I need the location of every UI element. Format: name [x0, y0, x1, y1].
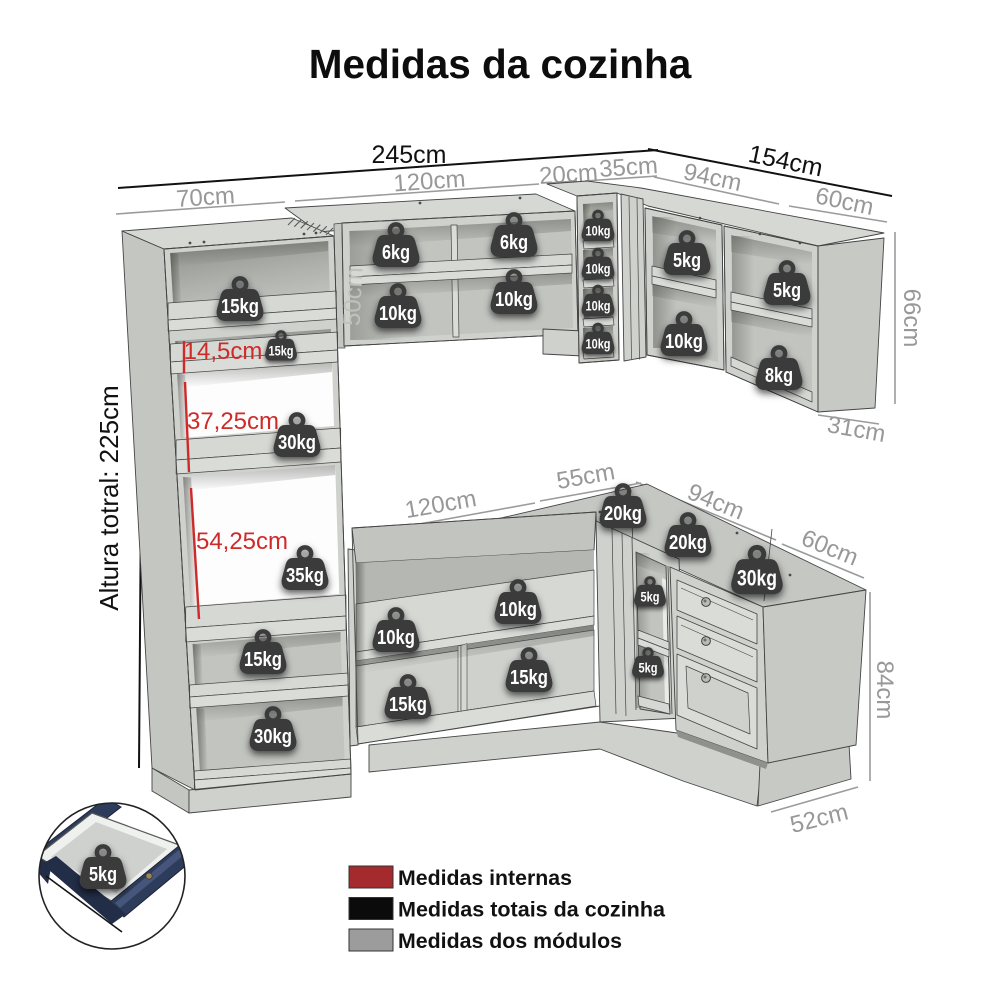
svg-text:70cm: 70cm	[175, 182, 235, 213]
svg-text:Medidas totais da cozinha: Medidas totais da cozinha	[398, 899, 665, 922]
svg-text:5kg: 5kg	[89, 863, 117, 886]
svg-text:10kg: 10kg	[665, 330, 703, 353]
svg-text:6kg: 6kg	[382, 241, 410, 264]
svg-text:15kg: 15kg	[510, 666, 548, 689]
svg-text:30kg: 30kg	[737, 566, 777, 591]
svg-text:20kg: 20kg	[669, 531, 707, 554]
svg-text:15kg: 15kg	[269, 343, 294, 358]
svg-text:Medidas dos módulos: Medidas dos módulos	[398, 930, 622, 953]
svg-text:15kg: 15kg	[221, 295, 259, 318]
svg-text:30kg: 30kg	[278, 431, 316, 454]
svg-text:5kg: 5kg	[641, 589, 660, 604]
svg-text:Medidas internas: Medidas internas	[398, 867, 572, 890]
svg-text:10kg: 10kg	[377, 626, 415, 649]
svg-text:10kg: 10kg	[586, 337, 611, 352]
svg-text:54,25cm: 54,25cm	[196, 528, 288, 555]
svg-text:Medidas da cozinha: Medidas da cozinha	[309, 41, 692, 87]
svg-text:35cm: 35cm	[598, 152, 658, 183]
svg-text:10kg: 10kg	[586, 262, 611, 277]
svg-text:10kg: 10kg	[499, 598, 537, 621]
svg-text:Altura totral: 225cm: Altura totral: 225cm	[94, 385, 124, 610]
svg-text:20kg: 20kg	[604, 502, 642, 525]
svg-text:8kg: 8kg	[765, 364, 793, 387]
svg-text:30kg: 30kg	[254, 725, 292, 748]
svg-text:35kg: 35kg	[286, 564, 324, 587]
svg-text:15kg: 15kg	[389, 693, 427, 716]
svg-text:10kg: 10kg	[586, 224, 611, 239]
svg-text:14,5cm: 14,5cm	[184, 338, 263, 365]
svg-text:120cm: 120cm	[393, 166, 467, 198]
svg-text:66cm: 66cm	[898, 289, 925, 348]
svg-text:50cm: 50cm	[338, 267, 368, 327]
svg-text:10kg: 10kg	[495, 288, 533, 311]
svg-text:6kg: 6kg	[500, 231, 528, 254]
svg-text:37,25cm: 37,25cm	[187, 408, 279, 435]
svg-text:15kg: 15kg	[244, 648, 282, 671]
svg-text:5kg: 5kg	[673, 249, 701, 272]
svg-text:5kg: 5kg	[639, 660, 658, 675]
svg-text:5kg: 5kg	[773, 279, 801, 302]
svg-text:84cm: 84cm	[871, 661, 898, 720]
svg-text:245cm: 245cm	[371, 141, 446, 169]
svg-text:10kg: 10kg	[379, 302, 417, 325]
svg-text:10kg: 10kg	[586, 299, 611, 314]
